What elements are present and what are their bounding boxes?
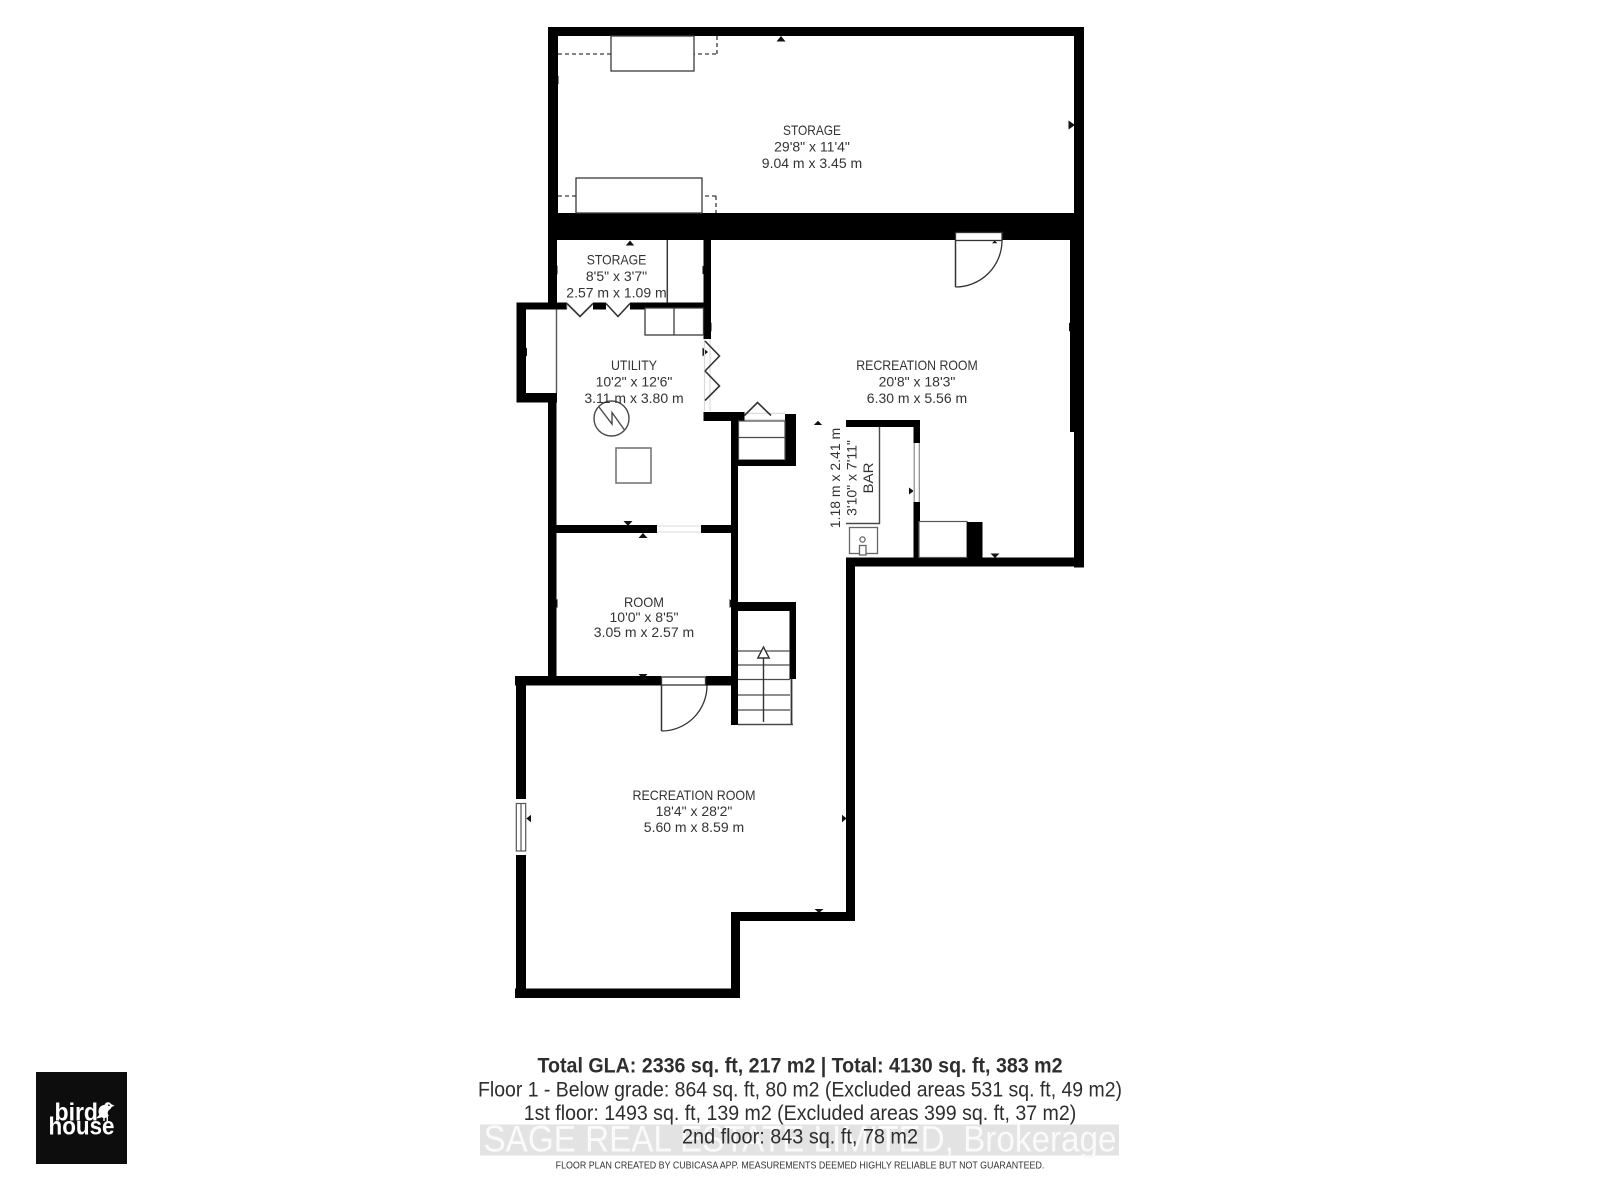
svg-text:1.18 m x 2.41 m: 1.18 m x 2.41 m xyxy=(827,428,843,528)
svg-text:10'2" x 12'6": 10'2" x 12'6" xyxy=(596,374,673,390)
svg-text:1st floor: 1493 sq. ft, 139 m2: 1st floor: 1493 sq. ft, 139 m2 (Excluded… xyxy=(524,1102,1077,1125)
svg-text:RECREATION ROOM: RECREATION ROOM xyxy=(856,357,978,373)
svg-text:2.57 m x 1.09 m: 2.57 m x 1.09 m xyxy=(566,285,666,301)
svg-text:BAR: BAR xyxy=(860,463,876,494)
svg-text:9.04 m x 3.45 m: 9.04 m x 3.45 m xyxy=(762,155,862,171)
svg-text:3.05 m x 2.57 m: 3.05 m x 2.57 m xyxy=(594,624,694,640)
svg-text:5.60 m x 8.59 m: 5.60 m x 8.59 m xyxy=(644,819,744,835)
svg-text:RECREATION ROOM: RECREATION ROOM xyxy=(633,787,756,803)
svg-text:6.30 m x 5.56 m: 6.30 m x 5.56 m xyxy=(867,390,967,406)
svg-text:STORAGE: STORAGE xyxy=(587,252,647,268)
svg-text:3'10" x 7'11": 3'10" x 7'11" xyxy=(844,440,860,516)
svg-text:8'5" x 3'7": 8'5" x 3'7" xyxy=(586,268,647,284)
svg-text:3.11 m x 3.80 m: 3.11 m x 3.80 m xyxy=(584,390,683,406)
svg-text:UTILITY: UTILITY xyxy=(611,357,658,373)
svg-text:Floor 1 - Below grade: 864 sq.: Floor 1 - Below grade: 864 sq. ft, 80 m2… xyxy=(478,1078,1122,1101)
svg-text:ROOM: ROOM xyxy=(624,594,664,610)
svg-text:10'0" x 8'5": 10'0" x 8'5" xyxy=(610,609,679,625)
svg-text:20'8" x 18'3": 20'8" x 18'3" xyxy=(879,374,956,390)
svg-text:FLOOR PLAN CREATED BY CUBICASA: FLOOR PLAN CREATED BY CUBICASA APP. MEAS… xyxy=(556,1161,1045,1172)
svg-text:STORAGE: STORAGE xyxy=(783,122,841,138)
svg-text:Total GLA: 2336 sq. ft, 217 m2: Total GLA: 2336 sq. ft, 217 m2 | Total: … xyxy=(538,1055,1063,1078)
svg-text:2nd floor: 843 sq. ft, 78 m2: 2nd floor: 843 sq. ft, 78 m2 xyxy=(682,1126,918,1149)
svg-text:29'8" x 11'4": 29'8" x 11'4" xyxy=(774,139,850,155)
svg-text:18'4" x 28'2": 18'4" x 28'2" xyxy=(656,803,733,819)
